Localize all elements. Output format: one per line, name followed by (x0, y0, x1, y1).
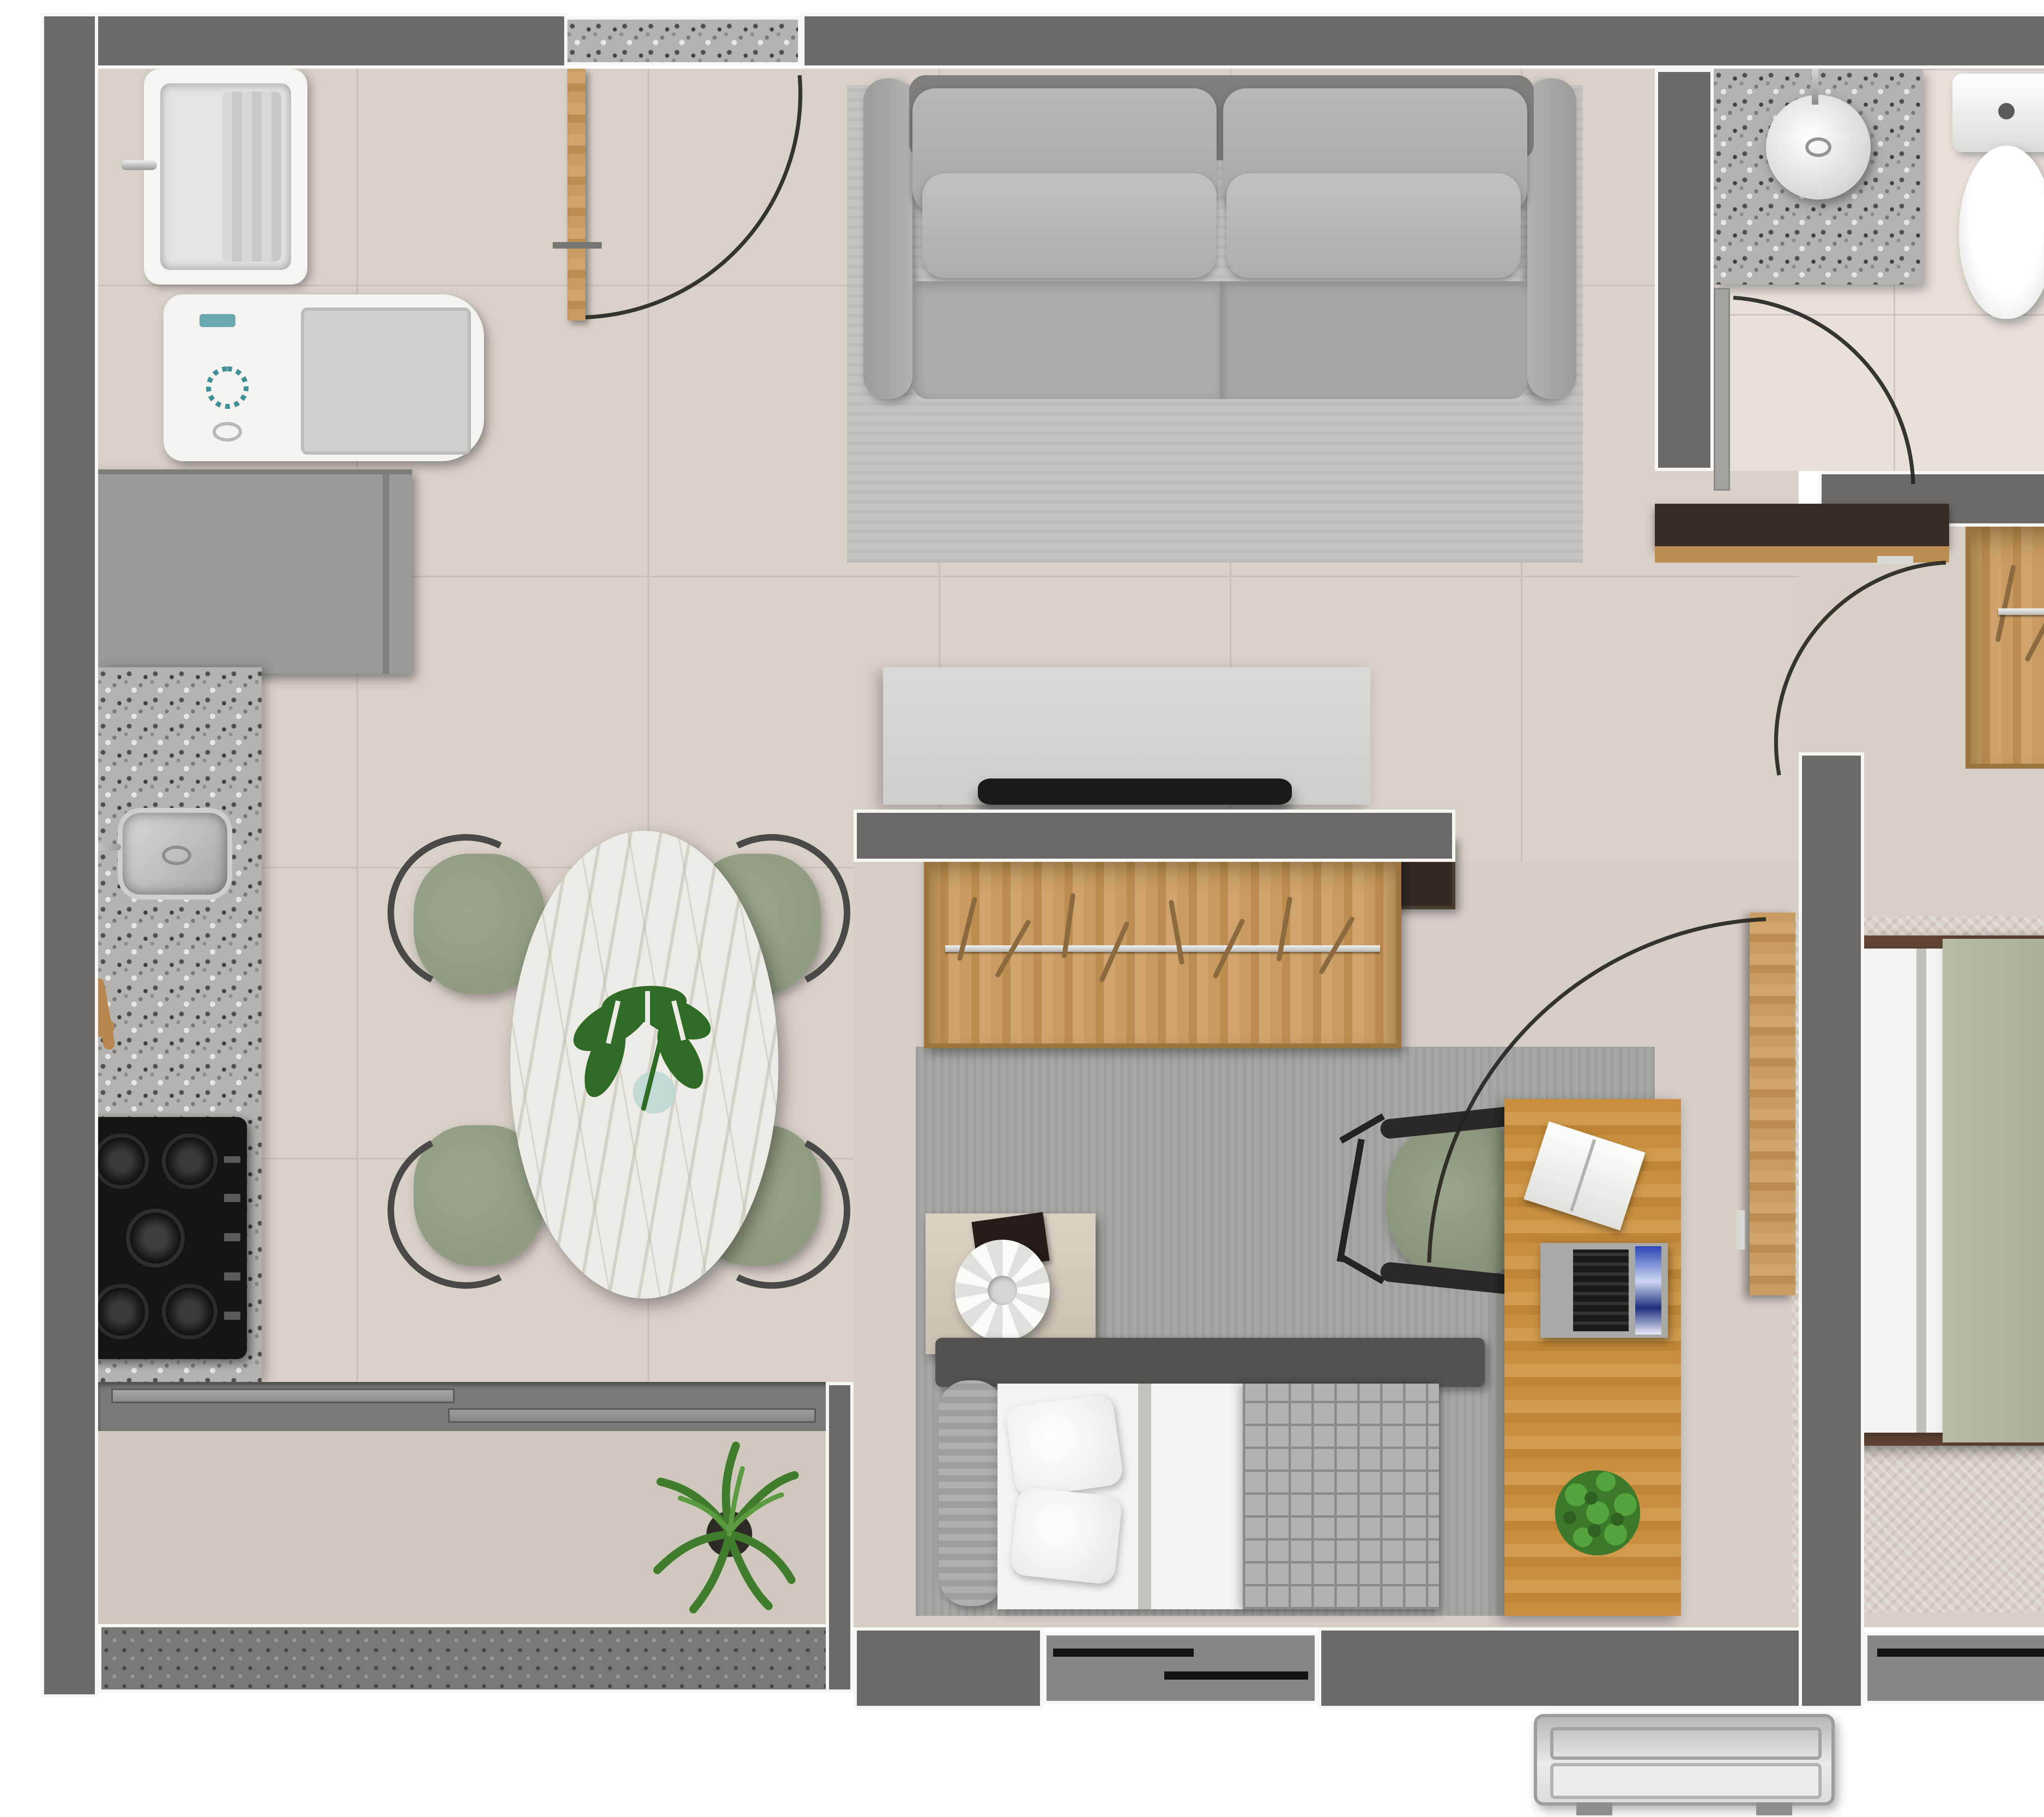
washing-machine (164, 294, 484, 461)
bathroom-door-leaf (1714, 288, 1730, 491)
burner-icon (126, 1209, 185, 1267)
sofa-seat (912, 281, 1220, 399)
toilet (1949, 74, 2044, 329)
nightstand (926, 1214, 1096, 1354)
sink-drain-icon (162, 846, 191, 865)
cooktop-knobs (224, 1156, 240, 1320)
bedroom-double-window (1864, 1632, 2044, 1704)
laptop (1540, 1243, 1668, 1338)
sofa-seat (1220, 281, 1527, 399)
bedroom-single-window (1043, 1632, 1318, 1704)
l-wardrobe-top (1966, 510, 2044, 769)
duvet (1858, 949, 2044, 1433)
wall-balcony-side (826, 1382, 854, 1693)
laptop-screen (1635, 1246, 1661, 1335)
entry-door-leaf (567, 69, 585, 321)
floor-balcony (98, 1431, 826, 1627)
burner-icon (162, 1133, 217, 1189)
laptop-keyboard (1573, 1249, 1629, 1331)
sofa-armrest (1527, 79, 1576, 399)
hanger-icon (1168, 900, 1185, 965)
open-notebook (1524, 1122, 1645, 1231)
wall-living-bathroom (1655, 69, 1714, 471)
wall-bottom (854, 1627, 1043, 1709)
monstera-leaf-icon (510, 831, 778, 1299)
duvet-fold (1916, 949, 1926, 1433)
wall-tv (854, 810, 1455, 862)
notebook-spine (1570, 1139, 1596, 1211)
television (978, 778, 1292, 805)
toilet-flush-button (1998, 103, 2015, 119)
plaid-blanket (1243, 1384, 1439, 1609)
balcony-parapet (98, 1624, 829, 1693)
floor-plan-canvas (0, 0, 2044, 1816)
desk (1504, 1099, 1681, 1616)
wall-bottom (1318, 1627, 1805, 1709)
double-bed (1845, 935, 2044, 1446)
sliding-panel (111, 1389, 455, 1403)
refrigerator (82, 469, 412, 674)
sofa-front-cushion (1226, 173, 1521, 278)
washboard (222, 92, 281, 262)
bed-headboard (935, 1338, 1485, 1387)
single-bed (935, 1338, 1485, 1616)
sliding-panel (448, 1408, 816, 1423)
toilet-bowl (1959, 146, 2044, 319)
window-pane (1164, 1671, 1308, 1680)
two-seat-sofa (863, 75, 1576, 402)
balcony-sliding-door (98, 1382, 829, 1431)
burner-icon (93, 1284, 149, 1339)
washer-panel-label (199, 314, 235, 327)
door-handle-icon (1877, 556, 1913, 564)
laundry-tank-sink (144, 69, 307, 285)
kitchen-sink (118, 808, 232, 900)
laundry-faucet-icon (121, 160, 157, 170)
sink-drain-icon (1805, 137, 1831, 157)
sofa-front-cushion (922, 173, 1217, 278)
chair-seat (1387, 1125, 1524, 1276)
duvet-fold (1138, 1384, 1151, 1609)
ac-grille (1550, 1727, 1822, 1760)
door-handle-icon (1737, 1210, 1745, 1249)
washer-knob-icon (213, 422, 242, 442)
washer-dial-icon (206, 366, 249, 409)
lamp-center (988, 1276, 1017, 1305)
wall-top (801, 13, 2044, 69)
window-pane (1877, 1649, 2044, 1657)
sofa-armrest (863, 79, 912, 399)
fridge-door-seam (383, 474, 389, 674)
ac-foot (1576, 1802, 1612, 1815)
floor-hallway (1455, 752, 1799, 862)
bed-side-bolster (939, 1380, 1004, 1606)
entry-door-handle (553, 242, 602, 249)
window-pane (1053, 1649, 1194, 1657)
toilet-tank (1952, 74, 2044, 152)
burner-icon (93, 1133, 149, 1189)
washer-lid (301, 307, 471, 455)
ac-panel (1550, 1763, 1822, 1799)
wall-left (41, 13, 98, 1698)
wall-top-left (41, 13, 567, 69)
hanger-icon (1099, 921, 1130, 983)
entry-threshold (564, 16, 801, 65)
wall-between-bedrooms (1799, 752, 1864, 1709)
bedroom-single-door-leaf (1750, 913, 1795, 1295)
wardrobe-rod (1998, 608, 2044, 615)
flower-table-lamp (955, 1240, 1050, 1341)
ac-foot (1756, 1802, 1792, 1815)
hanger-icon (1995, 565, 2016, 642)
gas-cooktop (77, 1117, 247, 1359)
desk-plant (1540, 1456, 1655, 1570)
ac-condenser-unit (1534, 1714, 1835, 1806)
vessel-sink (1766, 95, 1871, 200)
sage-runner (1943, 939, 2044, 1442)
hanger-icon (2024, 590, 2044, 662)
pillow (1005, 1393, 1125, 1499)
bedroom-double-door-leaf (1655, 504, 1949, 546)
dining-table (510, 831, 778, 1299)
open-wardrobe (924, 846, 1401, 1048)
pillow (1009, 1486, 1123, 1585)
burner-icon (162, 1284, 217, 1339)
mattress-duvet (997, 1384, 1439, 1609)
